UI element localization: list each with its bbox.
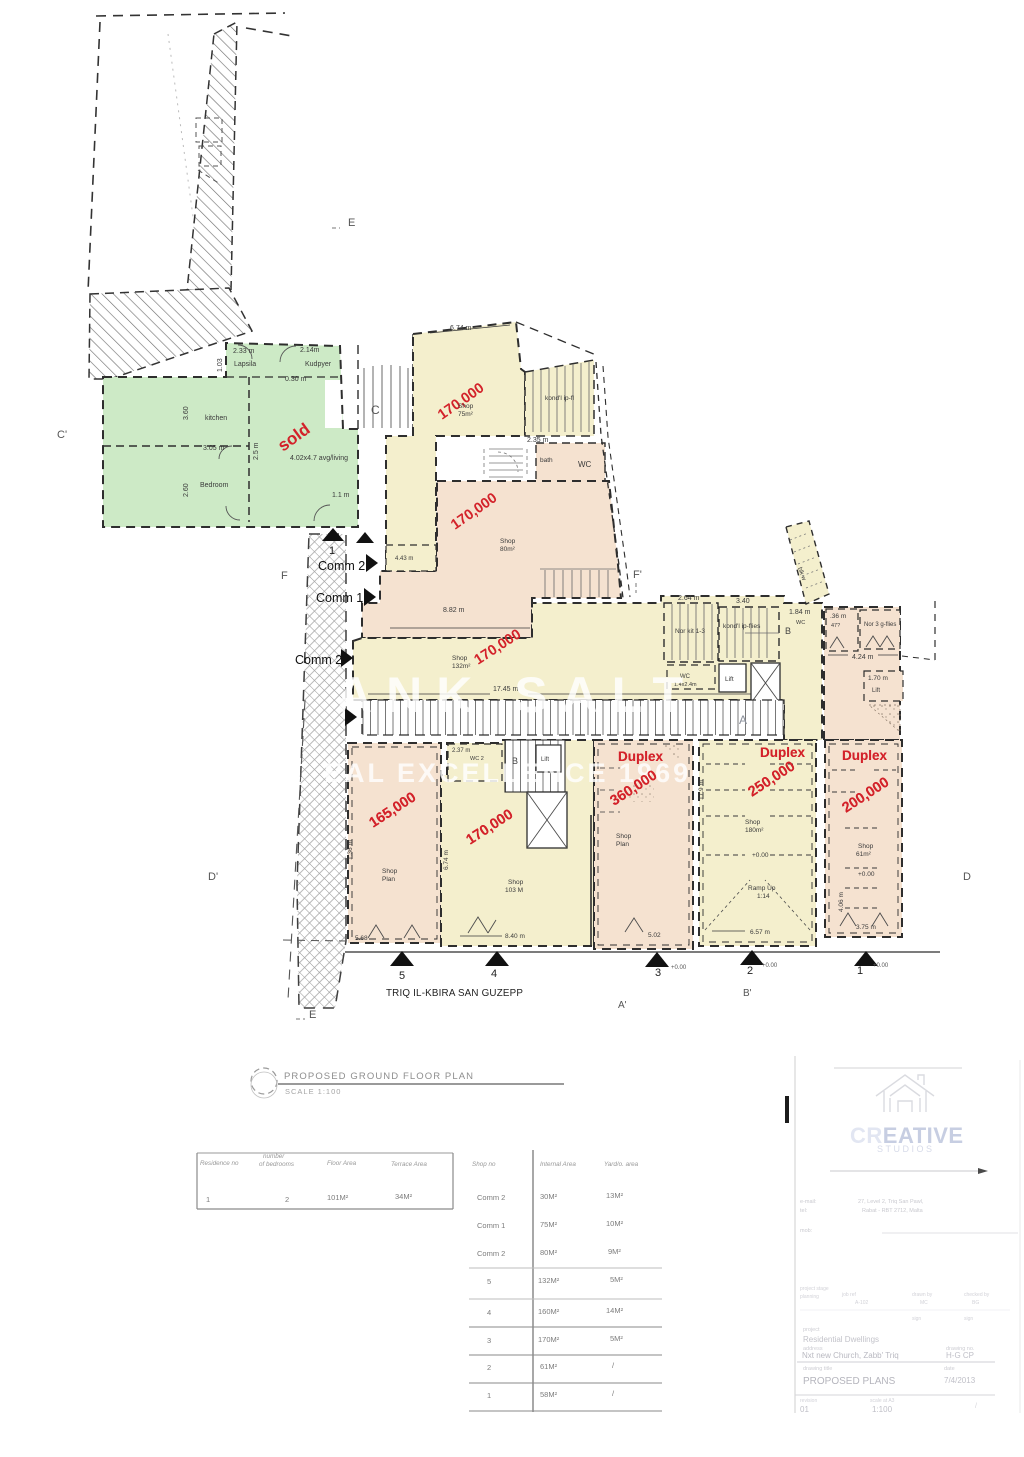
svg-text:kond'l ip-flies: kond'l ip-flies bbox=[723, 623, 761, 630]
svg-text:Plan: Plan bbox=[382, 876, 395, 883]
svg-text:47?: 47? bbox=[831, 623, 840, 629]
svg-text:1: 1 bbox=[206, 1195, 210, 1204]
svg-text:+0.00: +0.00 bbox=[752, 852, 769, 859]
svg-text:Lift: Lift bbox=[725, 676, 734, 683]
svg-text:+0.00: +0.00 bbox=[762, 963, 778, 969]
svg-text:4: 4 bbox=[487, 1308, 491, 1317]
svg-text:10M²: 10M² bbox=[606, 1219, 624, 1228]
svg-text:180m²: 180m² bbox=[745, 827, 764, 834]
svg-text:3.05 m: 3.05 m bbox=[203, 445, 225, 452]
svg-text:Duplex: Duplex bbox=[760, 745, 806, 760]
svg-text:132M²: 132M² bbox=[538, 1276, 560, 1285]
svg-text:6.57 m: 6.57 m bbox=[750, 929, 770, 936]
svg-text:170M²: 170M² bbox=[538, 1335, 560, 1344]
svg-text:5M²: 5M² bbox=[610, 1275, 623, 1284]
svg-text:D': D' bbox=[208, 871, 218, 883]
svg-text:Residential Dwellings: Residential Dwellings bbox=[803, 1335, 879, 1344]
svg-text:13M²: 13M² bbox=[606, 1191, 624, 1200]
svg-text:2.60: 2.60 bbox=[183, 483, 190, 497]
svg-text:Shop: Shop bbox=[452, 655, 468, 662]
svg-text:1: 1 bbox=[329, 545, 335, 557]
svg-text:sign: sign bbox=[912, 1316, 921, 1322]
svg-text:2: 2 bbox=[285, 1195, 289, 1204]
svg-text:Comm 1: Comm 1 bbox=[316, 591, 363, 605]
svg-text:Shop: Shop bbox=[382, 868, 398, 875]
svg-text:bath: bath bbox=[540, 457, 553, 464]
svg-text:PROPOSED PLANS: PROPOSED PLANS bbox=[803, 1376, 896, 1387]
svg-text:Shop: Shop bbox=[858, 843, 874, 850]
svg-text:3.60: 3.60 bbox=[183, 406, 190, 420]
svg-text:B: B bbox=[785, 626, 791, 636]
svg-text:e-mail:: e-mail: bbox=[800, 1199, 817, 1205]
svg-text:STUDIOS: STUDIOS bbox=[877, 1144, 935, 1154]
svg-text:B': B' bbox=[743, 988, 752, 999]
svg-text:61m²: 61m² bbox=[856, 851, 872, 858]
svg-text:8.40 m: 8.40 m bbox=[505, 933, 525, 940]
svg-text:Terrace Area: Terrace Area bbox=[391, 1161, 427, 1168]
svg-text:2.37 m: 2.37 m bbox=[452, 748, 470, 754]
svg-text:Comm 1: Comm 1 bbox=[477, 1221, 505, 1230]
svg-text:A: A bbox=[739, 713, 747, 727]
svg-text:Comm 2: Comm 2 bbox=[477, 1249, 505, 1258]
svg-text:2.64 m: 2.64 m bbox=[678, 595, 700, 602]
svg-text:revision: revision bbox=[800, 1398, 817, 1404]
svg-text:A': A' bbox=[618, 1000, 627, 1011]
svg-text:date: date bbox=[944, 1366, 955, 1372]
svg-text:drawing title: drawing title bbox=[803, 1366, 832, 1372]
svg-text:1.84 m: 1.84 m bbox=[789, 609, 811, 616]
svg-text:A-102: A-102 bbox=[855, 1300, 869, 1306]
svg-text:planning: planning bbox=[800, 1294, 819, 1300]
svg-text:Lapsila: Lapsila bbox=[234, 361, 256, 368]
svg-text:9M²: 9M² bbox=[608, 1247, 621, 1256]
svg-text:80m²: 80m² bbox=[500, 546, 516, 553]
svg-text:D: D bbox=[963, 871, 971, 883]
svg-text:Nor kit 1-3: Nor kit 1-3 bbox=[675, 628, 705, 635]
svg-text:5: 5 bbox=[487, 1277, 491, 1286]
svg-text:1.70 m: 1.70 m bbox=[868, 675, 888, 682]
svg-text:Comm 2: Comm 2 bbox=[295, 653, 342, 667]
svg-text:job ref: job ref bbox=[841, 1292, 857, 1298]
svg-text:+0.00: +0.00 bbox=[858, 871, 875, 878]
svg-text:Duplex: Duplex bbox=[842, 748, 888, 763]
svg-text:1: 1 bbox=[487, 1391, 491, 1400]
svg-text:E: E bbox=[348, 217, 355, 229]
svg-text:103 M: 103 M bbox=[505, 887, 523, 894]
svg-text:Lift: Lift bbox=[872, 688, 880, 694]
svg-text:drawn by: drawn by bbox=[912, 1292, 933, 1298]
svg-text:7/4/2013: 7/4/2013 bbox=[944, 1376, 976, 1385]
svg-text:5.68: 5.68 bbox=[355, 935, 368, 942]
svg-text:Rabat - RBT 2712, Malta: Rabat - RBT 2712, Malta bbox=[862, 1208, 924, 1214]
svg-text:17.9 m: 17.9 m bbox=[698, 780, 705, 800]
svg-text:2.35 m: 2.35 m bbox=[527, 437, 549, 444]
svg-text:3: 3 bbox=[655, 967, 661, 979]
svg-text:2.33 m: 2.33 m bbox=[233, 348, 255, 355]
svg-text:1:100: 1:100 bbox=[872, 1405, 893, 1414]
svg-text:5: 5 bbox=[399, 970, 405, 982]
svg-text:30M²: 30M² bbox=[540, 1192, 558, 1201]
svg-text:SCALE 1:100: SCALE 1:100 bbox=[285, 1087, 341, 1096]
svg-text:+0.00: +0.00 bbox=[671, 965, 687, 971]
svg-text:mob:: mob: bbox=[800, 1228, 813, 1234]
svg-text:scale at A3: scale at A3 bbox=[870, 1398, 895, 1404]
svg-text:WC: WC bbox=[578, 460, 592, 469]
svg-text:TRIQ IL-KBIRA SAN GUZEPP: TRIQ IL-KBIRA SAN GUZEPP bbox=[386, 988, 523, 999]
svg-text:tel:: tel: bbox=[800, 1208, 808, 1214]
svg-text:58M²: 58M² bbox=[540, 1390, 558, 1399]
svg-text:+0.00: +0.00 bbox=[873, 963, 889, 969]
svg-text:27, Level 2, Triq San Pawl,: 27, Level 2, Triq San Pawl, bbox=[858, 1199, 924, 1205]
svg-text:Duplex: Duplex bbox=[618, 749, 664, 764]
svg-text:.36 m: .36 m bbox=[830, 613, 846, 620]
svg-text:Ramp Up: Ramp Up bbox=[748, 885, 776, 892]
svg-text:80M²: 80M² bbox=[540, 1248, 558, 1257]
svg-text:2: 2 bbox=[747, 965, 753, 977]
svg-text:1.03: 1.03 bbox=[217, 358, 224, 372]
svg-text:number: number bbox=[263, 1153, 285, 1160]
svg-text:4.06 m: 4.06 m bbox=[838, 892, 845, 912]
svg-text:/: / bbox=[612, 1389, 615, 1398]
svg-text:1: 1 bbox=[857, 965, 863, 977]
svg-text:0.30 m: 0.30 m bbox=[285, 376, 307, 383]
svg-text:Floor Area: Floor Area bbox=[327, 1160, 357, 1167]
svg-text:checked by: checked by bbox=[964, 1292, 990, 1298]
svg-text:Yard/o. area: Yard/o. area bbox=[604, 1161, 639, 1168]
svg-text:8.82 m: 8.82 m bbox=[443, 607, 465, 614]
svg-text:1.1 m: 1.1 m bbox=[332, 492, 350, 499]
svg-text:PROPOSED GROUND FLOOR PLAN: PROPOSED GROUND FLOOR PLAN bbox=[284, 1071, 474, 1082]
svg-text:H-G CP: H-G CP bbox=[946, 1351, 974, 1360]
svg-text:of bedrooms: of bedrooms bbox=[259, 1161, 295, 1168]
svg-text:Bedroom: Bedroom bbox=[200, 482, 229, 489]
svg-text:1:14: 1:14 bbox=[757, 893, 770, 900]
svg-text:Comm 2: Comm 2 bbox=[477, 1193, 505, 1202]
svg-text:Shop: Shop bbox=[616, 833, 632, 840]
svg-text:14M²: 14M² bbox=[606, 1306, 624, 1315]
svg-text:sign: sign bbox=[964, 1316, 973, 1322]
svg-text:F: F bbox=[281, 570, 288, 582]
svg-text:6.74 m: 6.74 m bbox=[443, 850, 450, 870]
svg-text:Shop: Shop bbox=[458, 403, 474, 410]
svg-text:/: / bbox=[612, 1361, 615, 1370]
svg-text:Kudpyer: Kudpyer bbox=[305, 361, 332, 368]
svg-text:3: 3 bbox=[487, 1336, 491, 1345]
svg-text:ANK SALT: ANK SALT bbox=[336, 667, 697, 723]
svg-text:101M²: 101M² bbox=[327, 1193, 349, 1202]
svg-text:kond'l ip-fl: kond'l ip-fl bbox=[545, 395, 575, 402]
svg-text:Shop: Shop bbox=[508, 879, 524, 886]
svg-text:C': C' bbox=[57, 429, 67, 441]
svg-text:Residence no: Residence no bbox=[200, 1160, 239, 1167]
svg-text:34M²: 34M² bbox=[395, 1192, 413, 1201]
svg-text:Shop: Shop bbox=[500, 538, 516, 545]
svg-text:2: 2 bbox=[487, 1363, 491, 1372]
svg-text:4.02x4.7 avg/living: 4.02x4.7 avg/living bbox=[290, 455, 348, 462]
svg-text:Shop: Shop bbox=[745, 819, 761, 826]
svg-text:F': F' bbox=[633, 569, 642, 581]
svg-text:project: project bbox=[803, 1327, 820, 1333]
svg-text:5.02: 5.02 bbox=[648, 932, 661, 939]
svg-text:5M²: 5M² bbox=[610, 1334, 623, 1343]
svg-text:project stage: project stage bbox=[800, 1286, 829, 1292]
svg-text:Nor 3 g-flies: Nor 3 g-flies bbox=[864, 622, 896, 628]
svg-text:4: 4 bbox=[491, 968, 497, 980]
svg-text:WC: WC bbox=[796, 620, 805, 626]
svg-text:2.14m: 2.14m bbox=[300, 347, 320, 354]
svg-text:Plan: Plan bbox=[616, 841, 629, 848]
svg-text:Comm 2: Comm 2 bbox=[318, 559, 365, 573]
svg-text:/: / bbox=[975, 1403, 977, 1410]
svg-text:C: C bbox=[371, 403, 380, 417]
svg-text:Nxt new Church, Zabb' Triq: Nxt new Church, Zabb' Triq bbox=[802, 1351, 899, 1360]
svg-text:160M²: 160M² bbox=[538, 1307, 560, 1316]
svg-text:61M²: 61M² bbox=[540, 1362, 558, 1371]
svg-text:BG: BG bbox=[972, 1300, 979, 1306]
svg-text:01: 01 bbox=[800, 1405, 809, 1414]
svg-text:Internal Area: Internal Area bbox=[540, 1161, 576, 1168]
svg-text:75M²: 75M² bbox=[540, 1220, 558, 1229]
svg-text:E: E bbox=[309, 1009, 316, 1021]
svg-text:MC: MC bbox=[920, 1300, 928, 1306]
svg-text:3.40: 3.40 bbox=[736, 598, 750, 605]
svg-text:1.36 m: 1.36 m bbox=[347, 840, 354, 860]
svg-text:4.24 m: 4.24 m bbox=[852, 654, 874, 661]
svg-text:75m²: 75m² bbox=[458, 411, 474, 418]
svg-text:Shop no: Shop no bbox=[472, 1161, 496, 1168]
svg-text:4.43 m: 4.43 m bbox=[395, 556, 413, 562]
svg-text:kitchen: kitchen bbox=[205, 415, 227, 422]
svg-text:2.5 m: 2.5 m bbox=[253, 442, 260, 460]
